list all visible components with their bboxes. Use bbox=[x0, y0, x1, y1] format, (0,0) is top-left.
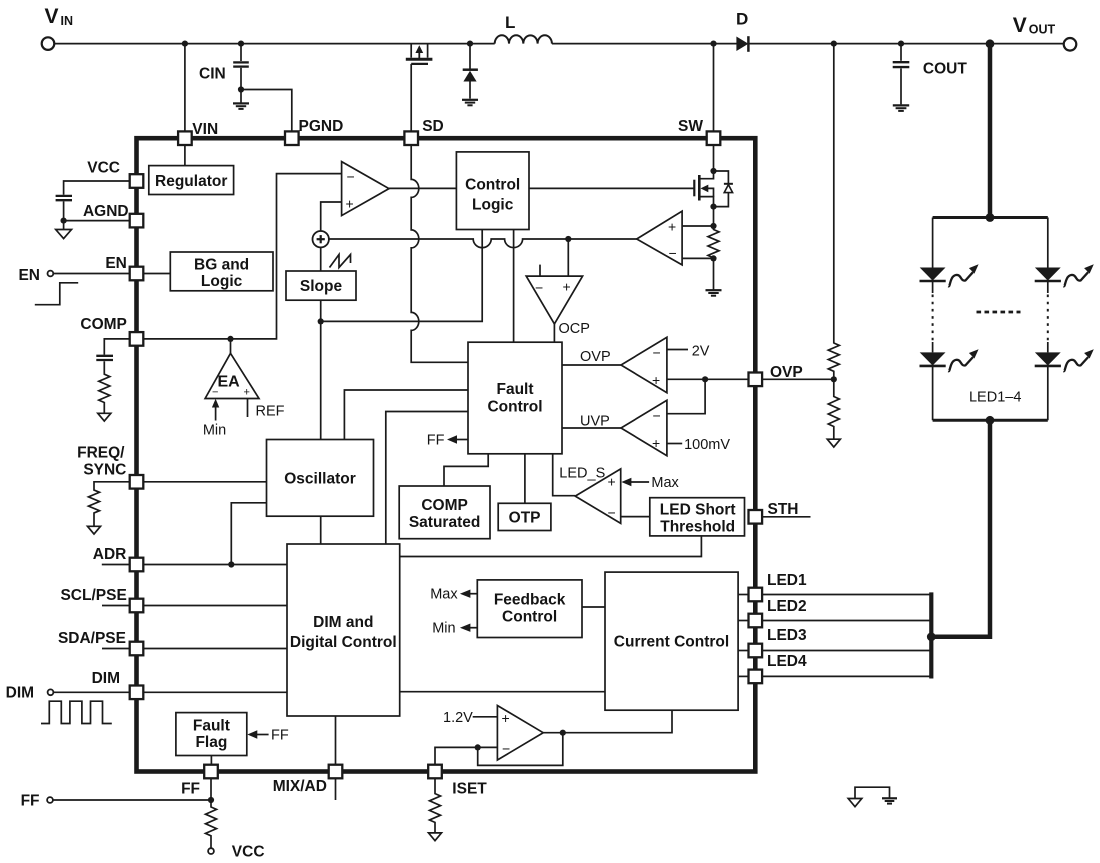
svg-text:CIN: CIN bbox=[199, 66, 226, 83]
svg-text:DIM and: DIM and bbox=[313, 614, 373, 631]
svg-text:SCL/PSE: SCL/PSE bbox=[60, 587, 126, 604]
svg-text:+: + bbox=[244, 387, 250, 399]
svg-text:OTP: OTP bbox=[509, 510, 541, 527]
svg-text:−: − bbox=[653, 345, 661, 361]
svg-text:OVP: OVP bbox=[580, 349, 611, 365]
svg-text:ISET: ISET bbox=[452, 781, 487, 798]
svg-text:VIN: VIN bbox=[192, 121, 218, 138]
svg-text:+: + bbox=[652, 372, 660, 388]
svg-text:Max: Max bbox=[651, 475, 679, 491]
svg-text:FREQ/: FREQ/ bbox=[77, 444, 125, 461]
svg-text:LED1–4: LED1–4 bbox=[969, 390, 1021, 406]
svg-text:LED Short: LED Short bbox=[660, 502, 736, 519]
svg-text:−: − bbox=[653, 408, 661, 424]
svg-text:UVP: UVP bbox=[580, 414, 610, 430]
svg-text:LED_S: LED_S bbox=[559, 466, 605, 482]
svg-text:Min: Min bbox=[432, 621, 455, 637]
svg-text:COMP: COMP bbox=[421, 497, 468, 514]
svg-text:Current Control: Current Control bbox=[614, 634, 729, 651]
svg-text:STH: STH bbox=[768, 501, 799, 518]
svg-text:EN: EN bbox=[18, 267, 40, 284]
svg-text:VCC: VCC bbox=[232, 844, 265, 861]
svg-text:COMP: COMP bbox=[80, 316, 127, 333]
svg-text:−: − bbox=[212, 387, 218, 399]
svg-text:Max: Max bbox=[430, 587, 458, 603]
svg-text:ADR: ADR bbox=[93, 546, 127, 563]
svg-text:+: + bbox=[563, 279, 571, 295]
svg-text:Fault: Fault bbox=[496, 381, 533, 398]
svg-text:IN: IN bbox=[61, 14, 74, 28]
svg-text:V: V bbox=[45, 5, 59, 28]
svg-text:+: + bbox=[346, 196, 354, 212]
svg-text:PGND: PGND bbox=[299, 118, 344, 135]
svg-text:FF: FF bbox=[427, 433, 445, 449]
svg-text:LED2: LED2 bbox=[767, 598, 807, 615]
svg-text:EN: EN bbox=[105, 255, 127, 272]
svg-text:DIM: DIM bbox=[6, 684, 34, 701]
svg-text:+: + bbox=[652, 435, 660, 451]
svg-text:−: − bbox=[502, 741, 510, 757]
svg-text:−: − bbox=[608, 505, 616, 521]
svg-text:FF: FF bbox=[181, 781, 200, 798]
svg-text:100mV: 100mV bbox=[684, 437, 730, 453]
svg-text:FF: FF bbox=[21, 793, 40, 810]
svg-text:Flag: Flag bbox=[195, 734, 227, 751]
svg-text:D: D bbox=[736, 10, 748, 29]
svg-text:SYNC: SYNC bbox=[83, 462, 126, 479]
svg-text:BG and: BG and bbox=[194, 256, 249, 273]
svg-text:Oscillator: Oscillator bbox=[284, 471, 356, 488]
svg-text:Min: Min bbox=[203, 423, 226, 439]
svg-text:OCP: OCP bbox=[559, 321, 590, 337]
svg-text:+: + bbox=[668, 219, 676, 235]
svg-text:Regulator: Regulator bbox=[155, 173, 227, 190]
svg-text:REF: REF bbox=[256, 404, 285, 420]
svg-text:Logic: Logic bbox=[472, 197, 514, 214]
svg-text:1.2V: 1.2V bbox=[443, 710, 473, 726]
svg-text:DIM: DIM bbox=[92, 670, 120, 687]
svg-text:Digital Control: Digital Control bbox=[290, 634, 397, 651]
svg-text:L: L bbox=[505, 13, 515, 32]
svg-text:SD: SD bbox=[422, 118, 444, 135]
svg-text:LED4: LED4 bbox=[767, 653, 807, 670]
svg-text:EA: EA bbox=[218, 374, 241, 391]
svg-text:OUT: OUT bbox=[1029, 23, 1056, 37]
svg-text:LED1: LED1 bbox=[767, 572, 807, 589]
svg-text:LED3: LED3 bbox=[767, 627, 807, 644]
svg-text:Control: Control bbox=[465, 177, 520, 194]
svg-text:Control: Control bbox=[487, 399, 542, 416]
svg-text:OVP: OVP bbox=[770, 364, 803, 381]
svg-text:−: − bbox=[669, 245, 677, 261]
svg-text:VCC: VCC bbox=[87, 160, 120, 177]
svg-text:V: V bbox=[1013, 14, 1027, 37]
svg-text:Slope: Slope bbox=[300, 278, 343, 295]
svg-text:Saturated: Saturated bbox=[409, 514, 481, 531]
svg-text:Control: Control bbox=[502, 609, 557, 626]
svg-text:Fault: Fault bbox=[193, 718, 230, 735]
svg-text:Threshold: Threshold bbox=[660, 519, 735, 536]
svg-text:SDA/PSE: SDA/PSE bbox=[58, 630, 126, 647]
svg-text:−: − bbox=[347, 169, 355, 185]
svg-text:SW: SW bbox=[678, 118, 703, 135]
svg-text:2V: 2V bbox=[692, 344, 710, 360]
svg-text:+: + bbox=[608, 474, 616, 490]
svg-text:Logic: Logic bbox=[201, 273, 243, 290]
svg-text:−: − bbox=[535, 280, 543, 296]
svg-text:FF: FF bbox=[271, 728, 289, 744]
svg-text:+: + bbox=[502, 710, 510, 726]
svg-text:AGND: AGND bbox=[83, 203, 129, 220]
svg-text:MIX/AD: MIX/AD bbox=[273, 778, 327, 795]
svg-text:Feedback: Feedback bbox=[494, 592, 566, 609]
svg-text:COUT: COUT bbox=[923, 61, 967, 78]
